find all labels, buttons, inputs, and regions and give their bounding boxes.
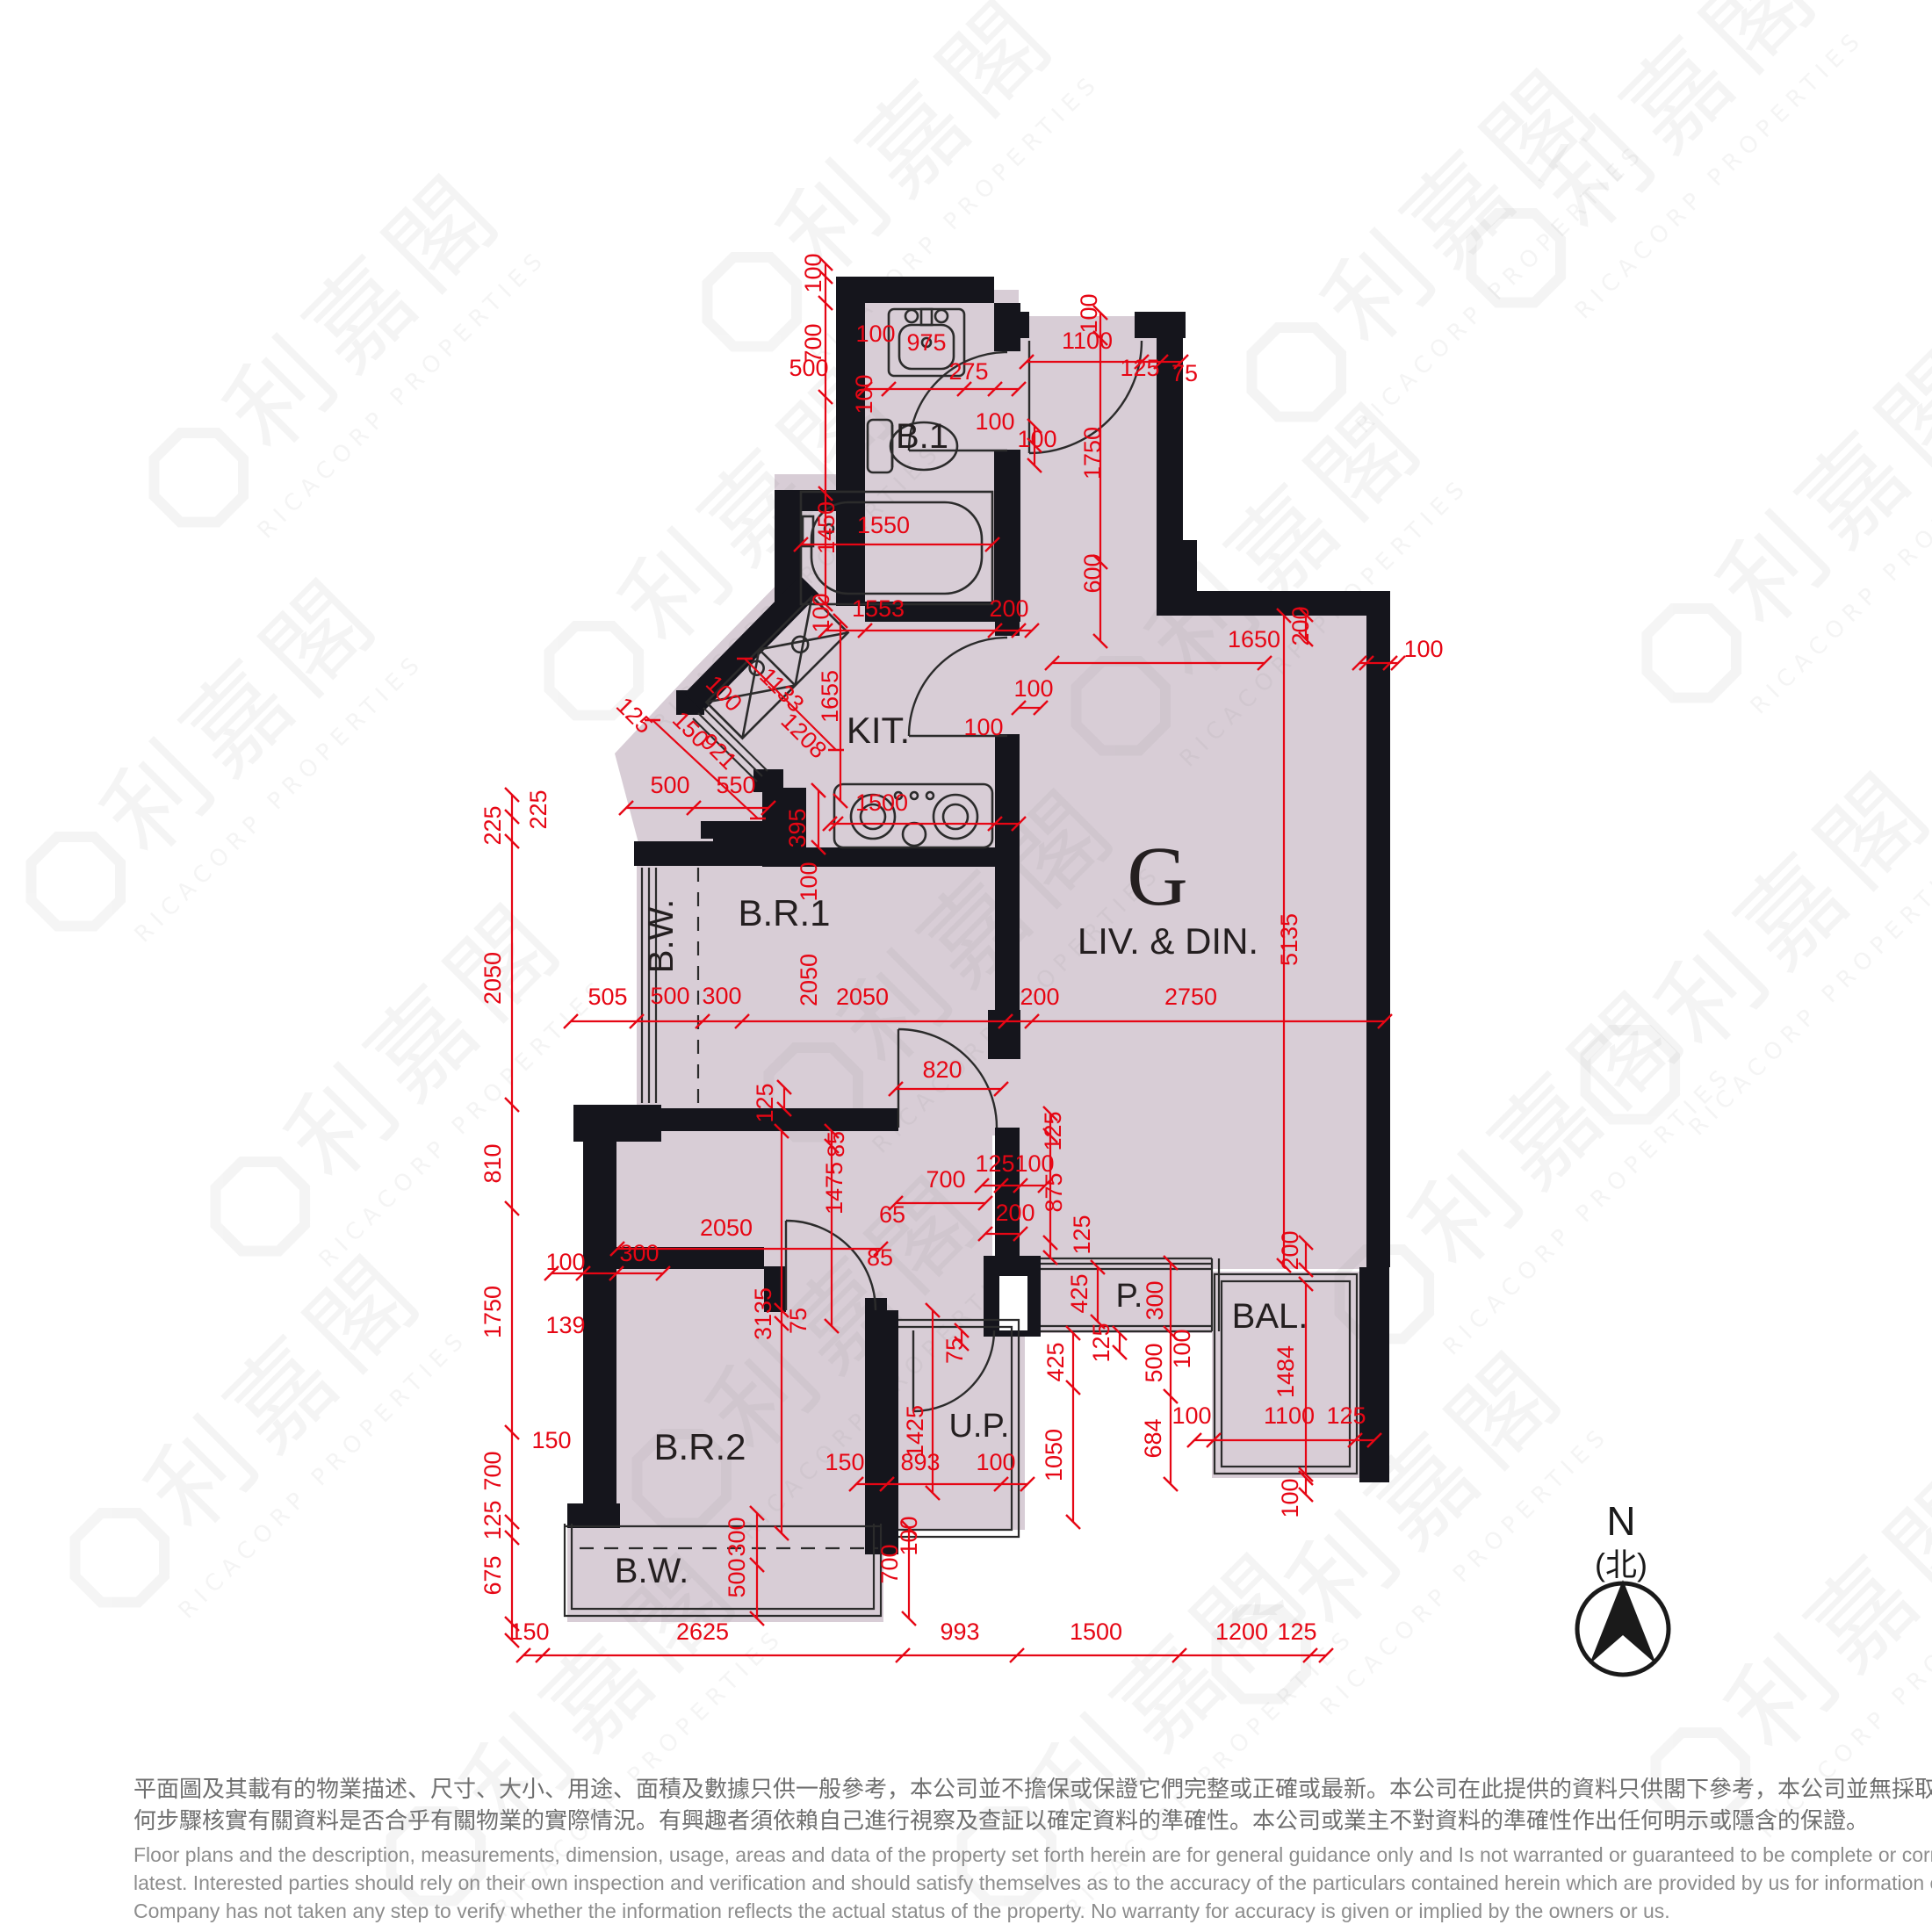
dim-label: 65 bbox=[879, 1201, 905, 1228]
dim-label: 150 bbox=[825, 1449, 864, 1475]
unit-label: G bbox=[1127, 829, 1187, 923]
dim-label: 100 bbox=[976, 1449, 1015, 1475]
dim-label: 1425 bbox=[902, 1405, 928, 1458]
dim-label: 100 bbox=[1017, 426, 1056, 452]
dim-label: 993 bbox=[940, 1618, 979, 1645]
dim-label: 100 bbox=[975, 408, 1014, 435]
ricacorp-watermark: 利嘉閣RICACORP PROPERTIES bbox=[188, 878, 616, 1307]
dim-label: 810 bbox=[479, 1143, 506, 1183]
dim-label: 600 bbox=[1079, 553, 1106, 593]
dim-label: 5135 bbox=[1276, 913, 1302, 966]
dim-label: 1553 bbox=[852, 595, 905, 622]
dim-label: 975 bbox=[906, 329, 946, 356]
dim-label: 2050 bbox=[836, 984, 889, 1010]
dim-label: 1484 bbox=[1272, 1345, 1299, 1398]
dim-label: 425 bbox=[1066, 1273, 1092, 1313]
dim-label: 100 bbox=[855, 321, 895, 347]
dim-label: 1050 bbox=[1041, 1429, 1067, 1481]
dim-label: 1500 bbox=[855, 789, 908, 816]
dim-label: 75 bbox=[941, 1337, 968, 1364]
dim-label: 684 bbox=[1140, 1418, 1166, 1458]
dim-label: 820 bbox=[922, 1056, 962, 1083]
disclaimer-en-line1: Floor plans and the description, measure… bbox=[133, 1843, 1932, 1866]
dim-label: 675 bbox=[479, 1555, 506, 1595]
dim-label: 100 bbox=[851, 374, 877, 414]
dim-label: 150 bbox=[531, 1427, 571, 1453]
dim-label: 2750 bbox=[1164, 984, 1217, 1010]
dim-label: 100 bbox=[1171, 1402, 1211, 1429]
room-label: B.R.2 bbox=[653, 1426, 746, 1467]
dim-label: 200 bbox=[995, 1200, 1034, 1226]
dim-label: 500 bbox=[650, 983, 689, 1009]
dim-label: 85 bbox=[823, 1131, 849, 1157]
ricacorp-watermark: 利嘉閣RICACORP PROPERTIES bbox=[47, 1229, 476, 1658]
dim-label: 1100 bbox=[1264, 1402, 1315, 1429]
dim-label: 395 bbox=[784, 808, 811, 847]
dim-label: 425 bbox=[1042, 1342, 1069, 1381]
svg-text:利嘉閣: 利嘉閣 bbox=[1706, 1449, 1932, 1772]
dim-label: 100 bbox=[1076, 293, 1102, 333]
dim-label: 2050 bbox=[479, 952, 506, 1005]
dim-label: 500 bbox=[650, 772, 689, 798]
dim-label: 500 bbox=[789, 355, 828, 381]
dim-label: 100 bbox=[963, 714, 1003, 740]
dim-label: 875 bbox=[1041, 1172, 1067, 1212]
dim-label: 1450 bbox=[813, 501, 840, 554]
dim-label: 700 bbox=[926, 1166, 965, 1193]
dim-label: 125 bbox=[1277, 1618, 1316, 1645]
disclaimer-zh-line2: 何步驟核實有關資料是否合乎有關物業的實際情況。有興趣者須依賴自己進行視察及查証以… bbox=[133, 1807, 1869, 1834]
dim-label: 2625 bbox=[676, 1618, 729, 1645]
dim-label: 550 bbox=[716, 772, 755, 798]
room-label: BAL. bbox=[1232, 1297, 1308, 1336]
disclaimer-en-line2: latest. Interested parties should rely o… bbox=[133, 1871, 1932, 1894]
dim-label: 125 bbox=[752, 1083, 778, 1122]
dim-label: 200 bbox=[989, 595, 1028, 622]
dim-label: 125 bbox=[1120, 355, 1159, 381]
dim-label: 275 bbox=[948, 358, 988, 385]
ricacorp-watermark: 利嘉閣RICACORP PROPERTIES bbox=[4, 553, 432, 982]
room-label: LIV. & DIN. bbox=[1078, 920, 1258, 962]
dim-label: 700 bbox=[479, 1451, 506, 1490]
ricacorp-watermark: 利嘉閣RICACORP PROPERTIES bbox=[1619, 325, 1932, 753]
dim-label: 300 bbox=[702, 983, 741, 1009]
dim-label: 500 bbox=[724, 1558, 750, 1597]
compass-n-label: N bbox=[1606, 1498, 1635, 1544]
dim-label: 1500 bbox=[1070, 1618, 1122, 1645]
dim-label: 139 bbox=[545, 1312, 585, 1338]
dim-label: 300 bbox=[619, 1240, 659, 1266]
room-label: B.W. bbox=[615, 1552, 688, 1590]
dim-label: 1750 bbox=[479, 1286, 506, 1338]
disclaimer: 平面圖及其載有的物業描述、尺寸、大小、用途、面積及數據只供一般參考，本公司並不擔… bbox=[133, 1776, 1932, 1922]
dim-label: 100 bbox=[1013, 675, 1053, 702]
dim-label: 500 bbox=[1141, 1343, 1167, 1382]
dim-label: 100 bbox=[1169, 1329, 1195, 1368]
dim-label: 125 bbox=[1088, 1323, 1114, 1362]
dim-label: 3135 bbox=[750, 1287, 776, 1340]
dim-label: 1650 bbox=[1228, 626, 1280, 652]
dim-label: 125 bbox=[1326, 1402, 1366, 1429]
room-label: B.1 bbox=[896, 417, 948, 456]
room-label: B.R.1 bbox=[738, 892, 830, 934]
dim-label: 225 bbox=[479, 805, 506, 845]
floor-plan-page: 利嘉閣RICACORP PROPERTIES利嘉閣RICACORP PROPER… bbox=[0, 0, 1932, 1932]
dim-label: 85 bbox=[867, 1244, 893, 1271]
compass-arrow-icon bbox=[1590, 1580, 1656, 1664]
room-label: B.W. bbox=[642, 899, 681, 973]
dim-label: 505 bbox=[588, 984, 627, 1010]
compass-north-cn-label: (北) bbox=[1595, 1546, 1647, 1582]
room-label: KIT. bbox=[847, 710, 910, 751]
dim-label: 125 bbox=[1069, 1215, 1095, 1254]
dim-label: 1655 bbox=[817, 670, 843, 723]
room-label: P. bbox=[1115, 1278, 1143, 1315]
dim-label: 100 bbox=[545, 1249, 585, 1275]
dim-label: 125 bbox=[1040, 1111, 1066, 1150]
dim-label: 75 bbox=[785, 1308, 811, 1334]
dim-label: 2050 bbox=[796, 954, 822, 1006]
dim-label: 200 bbox=[1287, 606, 1314, 645]
dim-label: 100 bbox=[896, 1516, 922, 1555]
dim-label: 300 bbox=[1142, 1280, 1168, 1320]
svg-text:利嘉閣: 利嘉閣 bbox=[1698, 325, 1932, 648]
room-label: U.P. bbox=[948, 1408, 1009, 1445]
dim-label: 1200 bbox=[1215, 1618, 1268, 1645]
dim-label: 150 bbox=[509, 1618, 549, 1645]
dim-label: 100 bbox=[808, 593, 834, 632]
dim-label: 100 bbox=[1403, 636, 1443, 662]
floor-plan-drawing: 利嘉閣RICACORP PROPERTIES利嘉閣RICACORP PROPER… bbox=[0, 0, 1932, 1932]
dim-label: 2050 bbox=[700, 1215, 753, 1241]
dim-label: 75 bbox=[1171, 360, 1198, 386]
dim-label: 1750 bbox=[1079, 427, 1106, 479]
dim-label: 200 bbox=[1020, 984, 1059, 1010]
dim-label: 125 bbox=[479, 1500, 506, 1539]
dim-label: 1475 bbox=[821, 1162, 847, 1215]
dim-label: 300 bbox=[724, 1517, 750, 1556]
dim-label: 200 bbox=[1277, 1230, 1303, 1270]
dim-label: 1550 bbox=[857, 512, 910, 538]
disclaimer-en-line3: Company has not taken any step to verify… bbox=[133, 1900, 1670, 1922]
north-compass: N (北) bbox=[1577, 1498, 1669, 1675]
pipe-duct bbox=[999, 1276, 1027, 1330]
ricacorp-watermark: 利嘉閣RICACORP PROPERTIES bbox=[126, 149, 555, 578]
disclaimer-zh-line1: 平面圖及其載有的物業描述、尺寸、大小、用途、面積及數據只供一般參考，本公司並不擔… bbox=[133, 1776, 1932, 1802]
dim-label: 225 bbox=[525, 789, 551, 829]
dim-label: 125 bbox=[975, 1150, 1014, 1177]
dim-label: 100 bbox=[1277, 1478, 1303, 1517]
dim-label: 100 bbox=[800, 253, 826, 292]
